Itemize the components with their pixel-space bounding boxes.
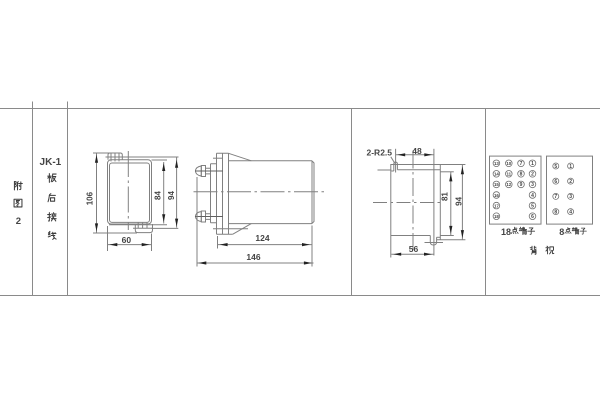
svg-text:18: 18 [494,214,499,219]
svg-text:2-R2.5: 2-R2.5 [367,147,393,157]
svg-text:84: 84 [154,191,163,200]
svg-text:2: 2 [531,172,534,178]
svg-text:7: 7 [520,161,523,167]
svg-text:9: 9 [520,182,523,188]
svg-text:13: 13 [494,161,499,166]
svg-text:5: 5 [554,164,557,170]
svg-text:81: 81 [440,192,449,201]
svg-text:3: 3 [531,182,534,188]
svg-text:14: 14 [494,172,499,177]
svg-text:8: 8 [520,172,523,178]
svg-text:60: 60 [122,235,132,245]
svg-text:1: 1 [569,164,572,170]
svg-text:56: 56 [409,244,419,254]
svg-text:124: 124 [255,233,269,243]
svg-text:11: 11 [506,172,511,177]
svg-text:4: 4 [531,193,534,199]
svg-text:16: 16 [494,193,499,198]
svg-text:1: 1 [531,161,534,167]
svg-text:2: 2 [569,179,572,185]
svg-text:94: 94 [167,191,176,200]
svg-text:106: 106 [86,191,95,205]
svg-text:94: 94 [454,196,463,205]
svg-text:146: 146 [246,252,260,262]
svg-text:6: 6 [531,214,534,220]
svg-text:12: 12 [506,182,511,187]
svg-text:6: 6 [554,179,557,185]
svg-text:8: 8 [554,209,557,215]
svg-text:3: 3 [569,194,572,200]
svg-text:18: 18 [501,227,511,237]
svg-text:17: 17 [494,203,499,208]
svg-text:2: 2 [16,216,21,227]
svg-text:JK-1: JK-1 [40,157,62,168]
svg-text:15: 15 [494,182,499,187]
svg-text:48: 48 [412,146,422,156]
svg-text:4: 4 [569,209,572,215]
svg-text:8: 8 [559,227,564,237]
svg-text:10: 10 [506,161,511,166]
svg-text:7: 7 [554,194,557,200]
svg-text:5: 5 [531,203,534,209]
